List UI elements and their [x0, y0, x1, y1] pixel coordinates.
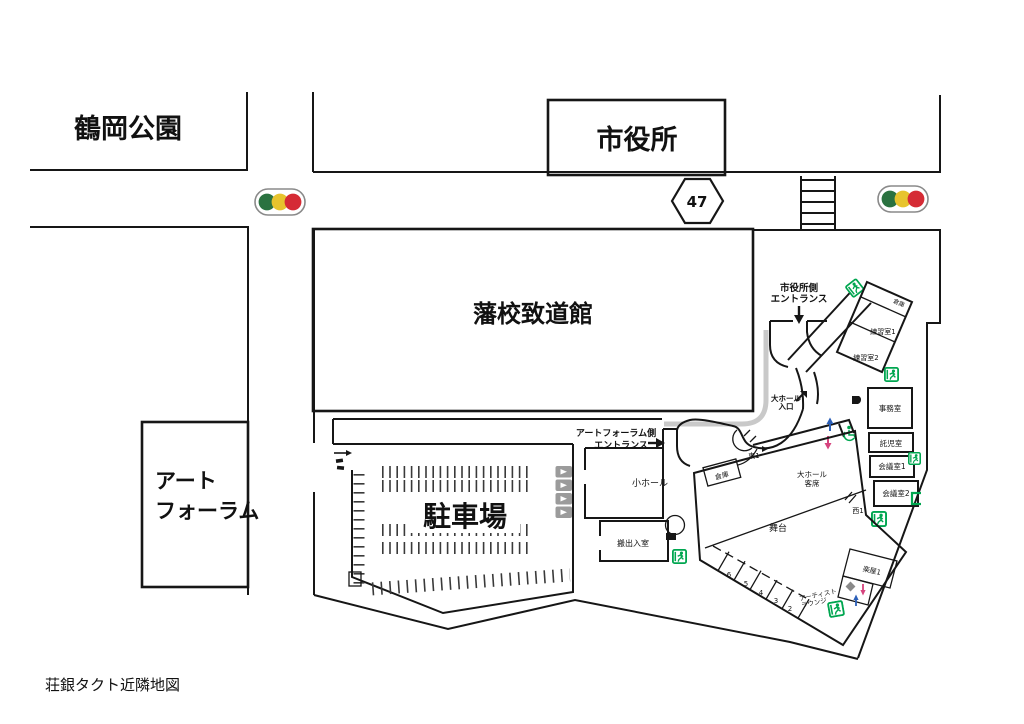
rooms-partitions	[718, 552, 809, 619]
route-number: 47	[687, 193, 708, 211]
room-number-3: 3	[774, 597, 778, 605]
chidokan-block: 藩校致道館	[313, 229, 753, 411]
park-label: 鶴岡公園	[74, 113, 182, 145]
nursery-label: 託児室	[880, 438, 903, 448]
door-west1-label: 西1	[852, 507, 863, 515]
main-hall-entrance: 大ホール 入口	[771, 391, 807, 411]
east1-door-mark	[762, 446, 768, 452]
map-canvas: 47 鶴岡公園 市役所 藩校致道館 アート フォーラム	[0, 0, 1024, 724]
meeting-room2-label: 会議室2	[882, 488, 909, 498]
art-forum-block: アート フォーラム	[142, 422, 259, 587]
city-hall-entrance-label-2: エントランス	[771, 294, 828, 305]
loading-dock-icon	[666, 533, 676, 540]
storage-lobby-label: 倉庫	[714, 469, 730, 481]
seating-label-1: 大ホール	[797, 469, 827, 479]
meeting-room1-label: 会議室1	[878, 461, 905, 471]
main-hall-entrance-label-2: 入口	[778, 402, 794, 411]
loading-room-label: 搬出入室	[617, 538, 649, 548]
down-arrow-icon	[794, 306, 804, 324]
dressing-room1-label: 楽屋1	[862, 564, 882, 577]
seating-label-2: 客席	[805, 478, 820, 488]
city-hall-label: 市役所	[597, 124, 678, 156]
traffic-signal-icon-west	[255, 189, 305, 215]
parking-label: 駐車場	[423, 500, 507, 533]
neighborhood-map: 47 鶴岡公園 市役所 藩校致道館 アート フォーラム	[0, 0, 1024, 724]
art-forum-entrance-label-2: エントランス	[594, 440, 648, 451]
office-label: 事務室	[879, 403, 902, 413]
chidokan-label: 藩校致道館	[473, 300, 593, 328]
crosswalk-icon	[801, 176, 835, 230]
art-forum-entrance-label-1: アートフォーラム側	[576, 427, 656, 439]
down-arrow-pink-icon-backstage	[860, 584, 865, 596]
parking-entrance-arrows-icon	[334, 450, 352, 470]
room-number-5: 5	[744, 580, 748, 588]
stage-divider	[705, 490, 866, 548]
small-hall-label: 小ホール	[632, 478, 668, 489]
room-number-2: 2	[788, 605, 792, 613]
parking-stalls-row3	[372, 575, 570, 589]
elevator-icon	[846, 582, 856, 592]
emergency-exit-icon-east	[885, 368, 898, 381]
loading-room-block: 搬出入室	[600, 516, 685, 562]
room-number-6: 6	[727, 571, 732, 579]
emergency-exit-icon-loading	[673, 550, 686, 563]
art-forum-label-1: アート	[155, 469, 217, 493]
traffic-signal-icon-east	[878, 186, 928, 212]
art-forum-label-2: フォーラム	[155, 499, 259, 523]
road-network	[30, 92, 940, 659]
room-number-4: 4	[759, 589, 764, 597]
grand-piano-icon	[852, 396, 861, 404]
emergency-exit-icon-west1	[872, 512, 886, 526]
city-hall-entrance-label-1: 市役所側	[780, 282, 819, 294]
practice-room1-label: 練習室1	[870, 327, 895, 336]
city-hall-block: 市役所	[548, 100, 725, 175]
route-47-shield-icon: 47	[672, 179, 723, 223]
practice-room2-label: 練習室2	[853, 353, 878, 362]
stage-label: 舞台	[769, 522, 787, 534]
road-edge-bottom-left	[30, 227, 248, 595]
office-strip: 事務室 託児室 会議室1 会議室2	[868, 388, 918, 506]
up-arrow-blue-icon-backstage	[853, 595, 858, 607]
emergency-exit-icon-meeting1	[909, 453, 920, 464]
emergency-exit-icon-lounge	[828, 601, 844, 617]
parking-sign-arrows-icon	[556, 466, 573, 518]
map-caption: 荘銀タクト近隣地図	[45, 676, 180, 694]
